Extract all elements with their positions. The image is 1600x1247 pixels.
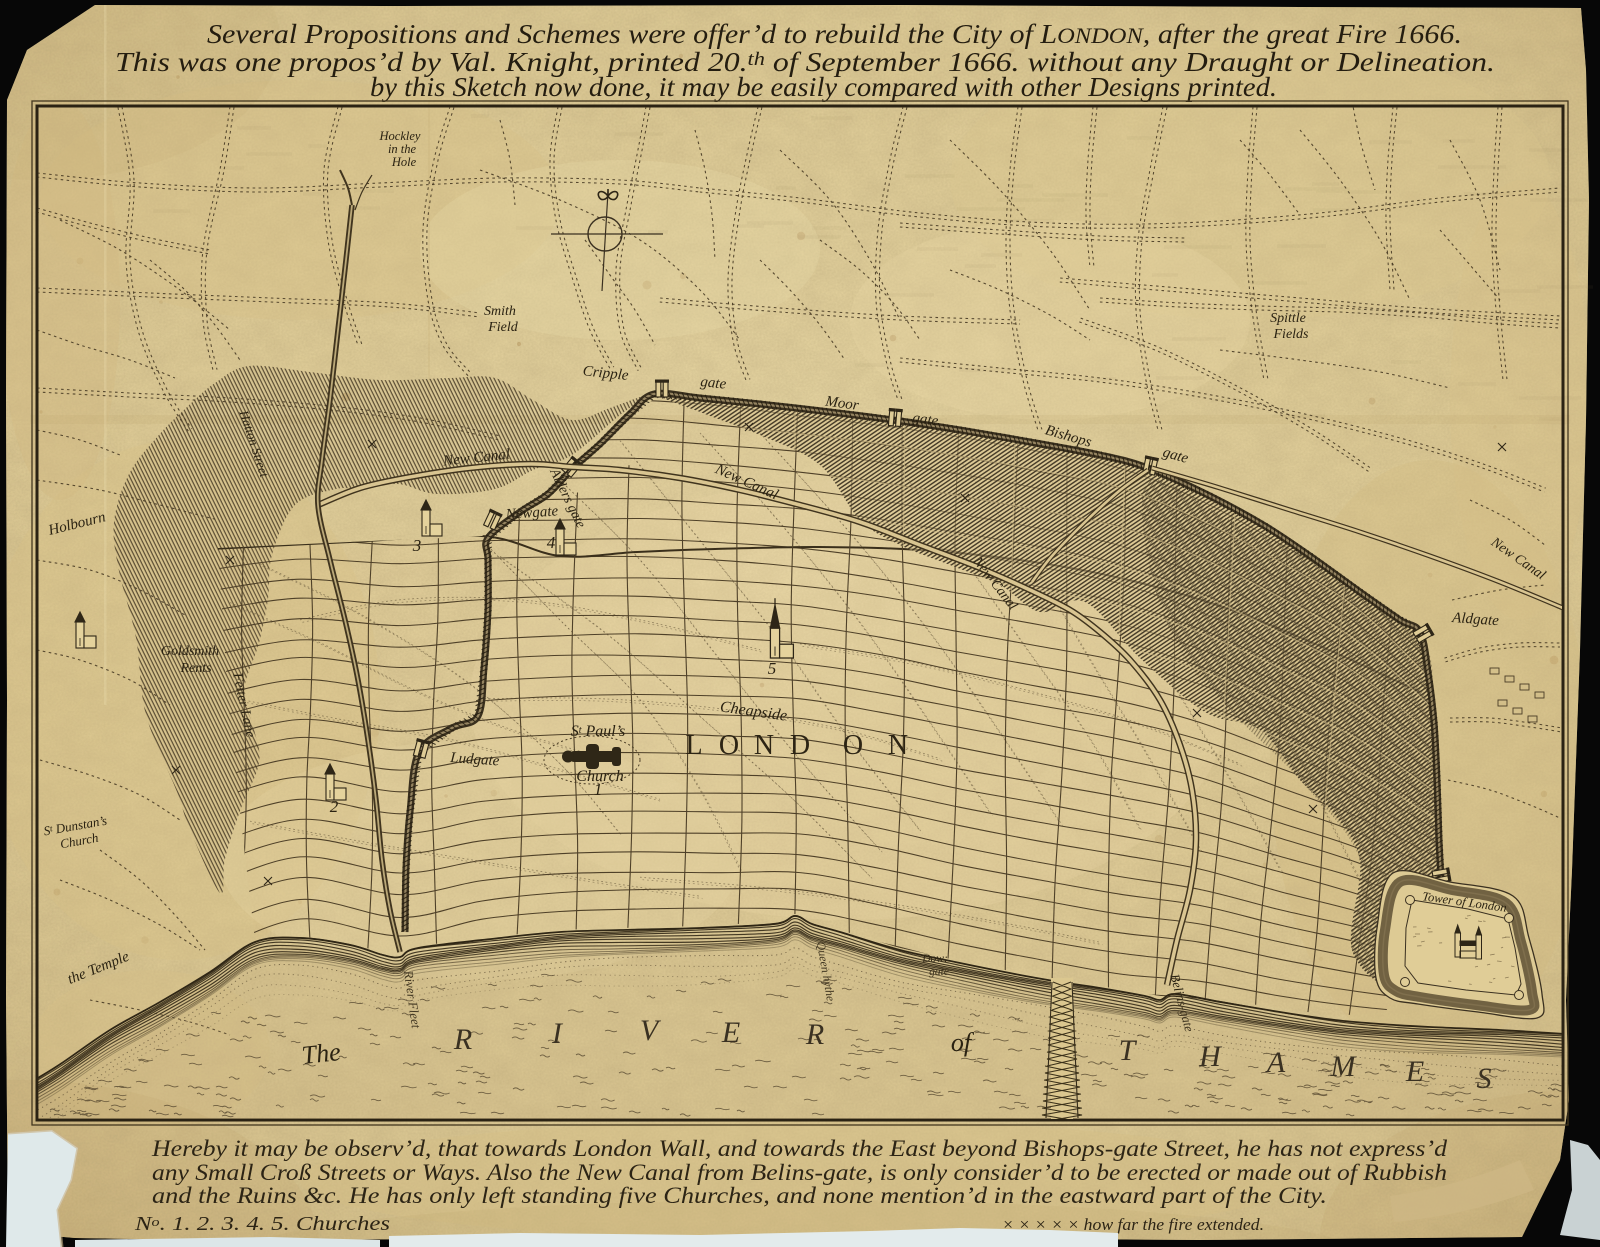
svg-text:Smith: Smith [484,304,516,319]
svg-text:2: 2 [330,797,339,816]
svg-text:R: R [453,1023,472,1056]
svg-text:gate: gate [700,374,728,393]
svg-text:Aldgate: Aldgate [1451,610,1500,629]
svg-text:Goldsmith: Goldsmith [161,644,219,659]
svg-text:1: 1 [594,780,603,799]
svg-text:and the Ruins &c. He has only: and the Ruins &c. He has only left stand… [152,1183,1327,1208]
svg-text:O: O [719,730,739,761]
svg-text:D: D [790,730,810,761]
svg-text:T: T [1119,1034,1138,1067]
svg-text:Hereby it may be observ’d, tha: Hereby it may be observ’d, that towards … [151,1136,1448,1161]
svg-text:N: N [754,730,774,761]
svg-text:3: 3 [412,536,422,555]
svg-text:Field: Field [487,320,519,335]
svg-text:by this Sketch now done, it ma: by this Sketch now done, it may be easil… [370,72,1277,102]
svg-text:R: R [805,1018,824,1051]
svg-text:Spittle: Spittle [1270,311,1306,326]
svg-text:5: 5 [768,659,777,678]
svg-text:E: E [1405,1055,1424,1088]
svg-text:H: H [1198,1040,1223,1073]
svg-text:any Small Croß Streets or Ways: any Small Croß Streets or Ways. Also the… [152,1160,1447,1185]
svg-text:O: O [843,730,863,761]
svg-text:N: N [888,730,908,761]
svg-text:Rents: Rents [179,661,212,676]
svg-text:A: A [1265,1046,1286,1079]
svg-text:L: L [685,730,702,761]
svg-text:Several Propositions and Schem: Several Propositions and Schemes were of… [207,19,1462,49]
svg-text:Hole: Hole [391,155,417,169]
svg-text:in the: in the [388,142,417,156]
svg-text:No. 1. 2. 3. 4. 5. Churches: No. 1. 2. 3. 4. 5. Churches [134,1213,391,1235]
svg-text:E: E [721,1016,740,1049]
svg-text:4: 4 [547,533,556,552]
svg-text:Hockley: Hockley [379,129,421,143]
svg-text:Fields: Fields [1273,327,1310,342]
svg-text:S: S [1477,1062,1492,1095]
svg-text:The: The [300,1037,342,1070]
svg-text:M: M [1330,1050,1358,1083]
